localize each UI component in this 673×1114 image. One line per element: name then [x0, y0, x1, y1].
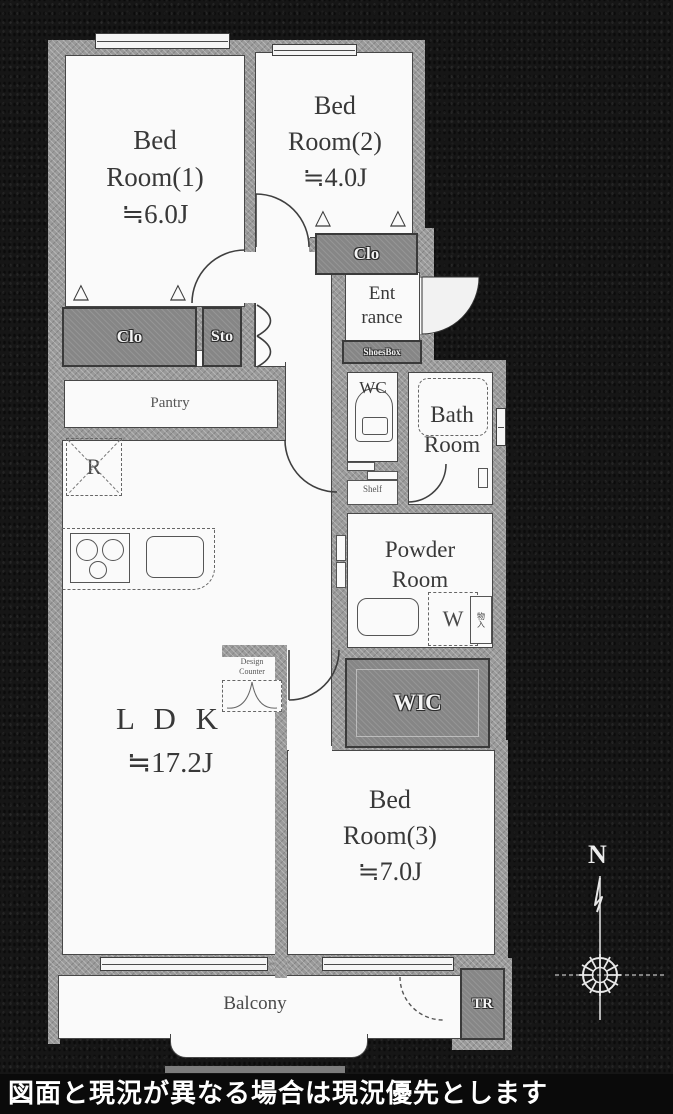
bedroom3-area: ≒7.0J — [300, 854, 480, 890]
closet-bed1-label: Clo — [117, 327, 143, 347]
disclaimer-text: 図面と現況が異なる場合は現況優先とします — [8, 1074, 668, 1114]
fold-door-icon: △ — [385, 205, 411, 229]
closet-bed2: Clo — [315, 233, 418, 275]
powder-name-1: Powder — [352, 535, 488, 565]
balcony-label: Balcony — [190, 992, 320, 1016]
opening-hall-corridor — [286, 361, 331, 371]
burner-icon — [76, 539, 98, 561]
bedroom2-area: ≒4.0J — [260, 160, 410, 196]
bedroom2-label: Bed Room(2) ≒4.0J — [260, 88, 410, 196]
fold-door-icon: △ — [68, 279, 94, 303]
balcony-step — [170, 1034, 368, 1058]
fold-door-icon: △ — [165, 279, 191, 303]
powder-room-label: Powder Room — [352, 535, 488, 595]
fold-door-icon: △ — [310, 205, 336, 229]
compass-north-label: N — [588, 840, 607, 870]
footer-bar: 図面と現況が異なる場合は現況優先とします — [0, 1074, 673, 1114]
scan-artifact — [165, 1066, 345, 1073]
shelf-label: Shelf — [350, 484, 395, 495]
powder-cabinet-label: 物入 — [476, 612, 487, 628]
ldk-name: L D K — [75, 700, 265, 739]
kitchen-sink — [146, 536, 204, 578]
bathroom-name-2: Room — [413, 430, 491, 460]
window-ldk-balcony — [100, 957, 268, 971]
wic-label: WIC — [393, 690, 442, 716]
design-counter-line2: Counter — [218, 667, 286, 677]
bedroom3-name-2: Room(3) — [300, 818, 480, 854]
bedroom1-name-2: Room(1) — [70, 159, 240, 196]
bedroom1-area: ≒6.0J — [70, 196, 240, 233]
ldk-label: L D K ≒17.2J — [75, 700, 265, 781]
trunk-room: TR — [460, 968, 505, 1040]
bathroom-label: Bath Room — [413, 400, 491, 460]
compass-rose — [555, 876, 665, 1020]
closet-bed2-label: Clo — [354, 244, 380, 264]
wc-sliding-door-2 — [367, 471, 398, 480]
bath-door-handle — [478, 468, 488, 488]
storage-hall: Sto — [202, 307, 242, 367]
toilet-tank — [362, 417, 388, 435]
refrigerator-label: R — [87, 453, 102, 481]
design-counter-label: Design Counter — [218, 657, 286, 677]
powder-sliding-door-2 — [336, 562, 346, 588]
wall-design-counter — [222, 645, 287, 657]
powder-sliding-door — [336, 535, 346, 561]
bedroom1-name-1: Bed — [70, 122, 240, 159]
window-bed3-balcony — [322, 957, 454, 971]
powder-cabinet: 物入 — [470, 596, 492, 644]
compass-north-arrow — [595, 878, 602, 912]
powder-name-2: Room — [352, 565, 488, 595]
bedroom3-label: Bed Room(3) ≒7.0J — [300, 782, 480, 890]
stove — [70, 533, 130, 583]
window-bedroom1 — [95, 33, 230, 49]
pantry-label: Pantry — [120, 394, 220, 413]
storage-hall-label: Sto — [211, 328, 233, 346]
shoes-box-label: ShoesBox — [363, 347, 400, 357]
bedroom3-name-1: Bed — [300, 782, 480, 818]
design-counter-line1: Design — [218, 657, 286, 667]
opening-bed1-door — [244, 252, 257, 303]
burner-icon — [102, 539, 124, 561]
shoes-box: ShoesBox — [342, 340, 422, 364]
walk-in-closet: WIC — [345, 658, 490, 748]
opening-corridor-ldk — [286, 436, 331, 444]
bathroom-name-1: Bath — [413, 400, 491, 430]
floor-plan: Clo Sto Clo ShoesBox WIC TR R W 物入 Desig… — [0, 0, 673, 1114]
window-bathroom — [496, 408, 506, 446]
corridor-floor — [285, 362, 332, 442]
entrance-name-1: Ent — [347, 282, 417, 306]
opening-entrance-door — [420, 278, 434, 334]
wc-label: WC — [352, 377, 394, 398]
compass-spokes — [579, 954, 621, 996]
entrance-name-2: rance — [347, 306, 417, 330]
opening-bed3-door — [289, 746, 332, 754]
burner-icon — [89, 561, 107, 579]
ldk-area: ≒17.2J — [75, 745, 265, 781]
bedroom1-label: Bed Room(1) ≒6.0J — [70, 122, 240, 233]
refrigerator-space: R — [66, 438, 122, 496]
window-bedroom2 — [272, 44, 357, 56]
entrance-label: Ent rance — [347, 282, 417, 330]
opening-bed2-door — [256, 236, 310, 244]
trunk-room-label: TR — [472, 996, 493, 1013]
powder-sink — [357, 598, 419, 636]
bedroom2-name-2: Room(2) — [260, 124, 410, 160]
closet-bed1: Clo — [62, 307, 197, 367]
bedroom2-name-1: Bed — [260, 88, 410, 124]
wc-sliding-door — [347, 462, 375, 471]
washer-label: W — [443, 605, 464, 633]
